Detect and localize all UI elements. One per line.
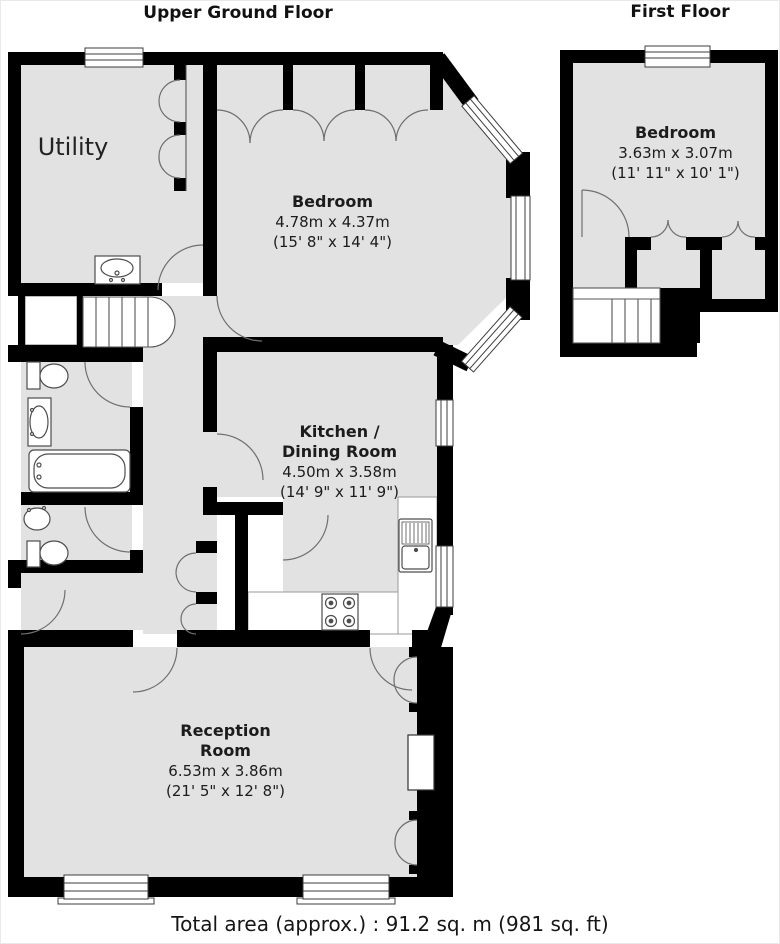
stairs-ground-icon — [83, 297, 175, 347]
utility-window — [85, 48, 143, 67]
first-floor-landing — [573, 237, 625, 288]
reception-name-line2: Room — [128, 741, 323, 761]
bath-icon — [29, 450, 130, 492]
toilet2-icon — [27, 541, 68, 567]
first-floor-window — [645, 46, 710, 67]
floorplan-image: Upper Ground Floor First Floor Utility B… — [0, 0, 780, 944]
bedroom-first-size-imperial: (11' 11" x 10' 1") — [578, 163, 773, 183]
bedroom-first-name: Bedroom — [578, 123, 773, 143]
kitchen-name-line1: Kitchen / — [242, 422, 437, 442]
room-label-bedroom-ground: Bedroom 4.78m x 4.37m (15' 8" x 14' 4") — [235, 192, 430, 252]
kitchen-name-line2: Dining Room — [242, 442, 437, 462]
upper-ground-floor-title: Upper Ground Floor — [88, 3, 388, 23]
bay-window-middle — [511, 196, 530, 280]
reception-name-line1: Reception — [128, 721, 323, 741]
toilet-icon — [27, 362, 68, 389]
entrance-floor — [21, 573, 143, 630]
reception-size-metric: 6.53m x 3.86m — [128, 761, 323, 781]
fireplace — [408, 735, 434, 790]
kitchen-floor-lower — [283, 497, 398, 592]
total-area-text: Total area (approx.) : 91.2 sq. m (981 s… — [0, 914, 780, 934]
bedroom-ground-size-imperial: (15' 8" x 14' 4") — [235, 232, 430, 252]
stairs-first-icon — [573, 288, 660, 343]
stove-icon — [322, 594, 358, 630]
kitchen-size-imperial: (14' 9" x 11' 9") — [242, 482, 437, 502]
reception-size-imperial: (21' 5" x 12' 8") — [128, 781, 323, 801]
reception-window-right — [297, 875, 395, 904]
kitchen-window-upper — [436, 400, 453, 446]
bedroom-ground-size-metric: 4.78m x 4.37m — [235, 212, 430, 232]
kitchen-window-lower — [436, 546, 453, 607]
utility-sink-icon — [95, 256, 140, 284]
kitchen-size-metric: 4.50m x 3.58m — [242, 462, 437, 482]
bedroom-ground-name: Bedroom — [235, 192, 430, 212]
void-area — [25, 296, 77, 345]
kitchen-sink-icon — [399, 519, 432, 572]
first-floor-title: First Floor — [580, 2, 780, 22]
reception-window-left — [58, 875, 154, 904]
room-label-kitchen-dining: Kitchen / Dining Room 4.50m x 3.58m (14'… — [242, 422, 437, 502]
bedroom-first-size-metric: 3.63m x 3.07m — [578, 143, 773, 163]
room-label-reception: Reception Room 6.53m x 3.86m (21' 5" x 1… — [128, 721, 323, 801]
utility-room-floor — [21, 65, 207, 283]
basin-icon — [28, 398, 51, 446]
room-label-bedroom-first: Bedroom 3.63m x 3.07m (11' 11" x 10' 1") — [578, 123, 773, 183]
room-label-utility: Utility — [18, 137, 128, 157]
